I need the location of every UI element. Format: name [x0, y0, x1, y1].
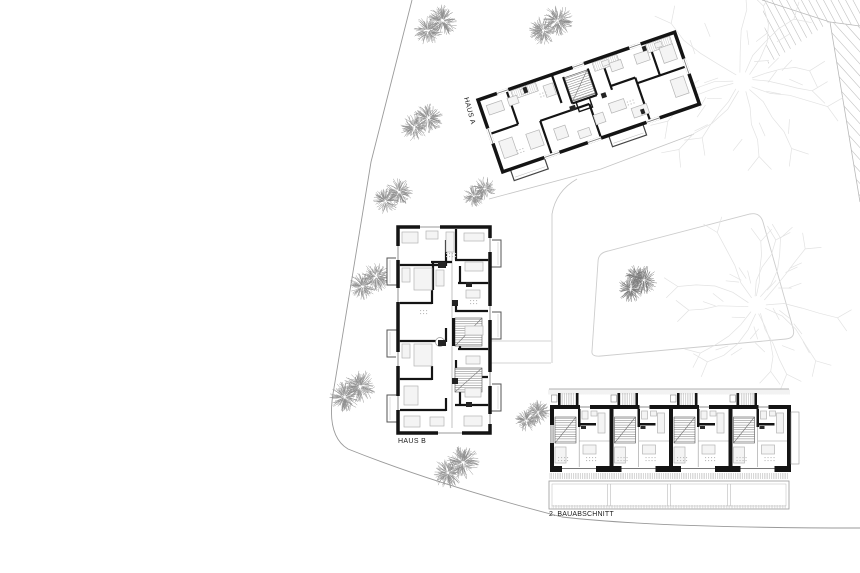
label-haus-b: HAUS B: [398, 438, 426, 445]
tree-icon: [463, 177, 495, 207]
tree-icon: [529, 6, 573, 45]
building-row-houses: [549, 389, 799, 509]
site-plan-drawing: HAUS A HAUS B 2. BAUABSCHNITT: [0, 0, 860, 573]
tree-icon: [414, 5, 457, 44]
building-haus-b: [387, 225, 501, 435]
label-row-houses: 2. BAUABSCHNITT: [549, 511, 614, 518]
tree-icon: [330, 371, 375, 412]
tree-icon: [350, 263, 391, 300]
tree-icon: [515, 400, 550, 431]
tree-icon: [373, 178, 413, 213]
site-plan-page: HAUS A HAUS B 2. BAUABSCHNITT: [0, 0, 860, 573]
label-haus-a: HAUS A: [462, 97, 476, 126]
building-haus-a: [476, 30, 705, 184]
tree-icon: [401, 104, 443, 141]
